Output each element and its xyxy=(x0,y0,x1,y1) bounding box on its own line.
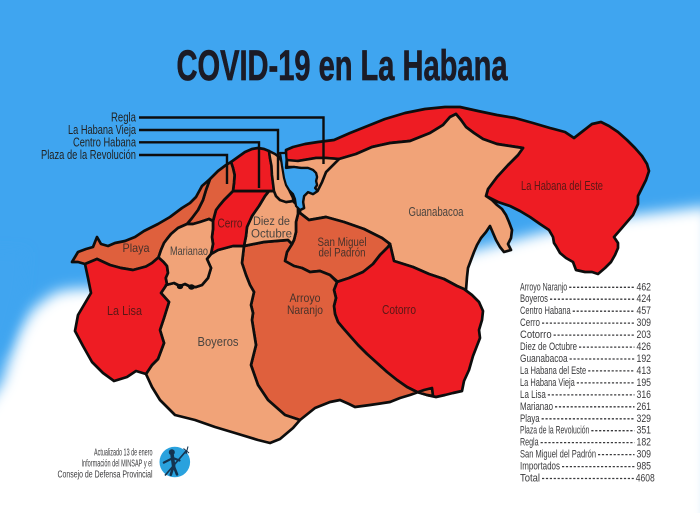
svg-text:Actualizado 13 de enero: Actualizado 13 de enero xyxy=(94,448,153,459)
svg-text:Playa: Playa xyxy=(520,413,540,425)
svg-text:309: 309 xyxy=(637,317,652,329)
svg-text:Cotorro: Cotorro xyxy=(520,329,552,341)
svg-text:Información del MINSAP y el: Información del MINSAP y el xyxy=(82,459,153,470)
svg-text:426: 426 xyxy=(637,341,652,353)
svg-text:Naranjo: Naranjo xyxy=(287,303,323,317)
svg-text:La Lisa: La Lisa xyxy=(107,304,142,318)
svg-text:del Padrón: del Padrón xyxy=(319,248,366,260)
svg-text:Arroyo Naranjo: Arroyo Naranjo xyxy=(520,281,567,293)
svg-text:329: 329 xyxy=(637,413,652,425)
svg-text:413: 413 xyxy=(637,365,652,377)
svg-text:Octubre: Octubre xyxy=(251,229,292,241)
svg-text:Marianao: Marianao xyxy=(520,401,553,413)
svg-text:Boyeros: Boyeros xyxy=(198,335,239,349)
svg-text:Cerro: Cerro xyxy=(520,317,540,329)
svg-text:Diez de Octubre: Diez de Octubre xyxy=(520,341,577,353)
svg-text:316: 316 xyxy=(637,389,652,401)
svg-text:203: 203 xyxy=(637,329,652,341)
svg-text:COVID-19 en La Habana: COVID-19 en La Habana xyxy=(177,42,509,90)
svg-text:351: 351 xyxy=(637,425,652,437)
svg-text:Regla: Regla xyxy=(520,437,539,449)
svg-text:985: 985 xyxy=(637,461,652,473)
svg-text:182: 182 xyxy=(637,437,652,449)
svg-text:Total: Total xyxy=(520,473,540,485)
svg-text:Playa: Playa xyxy=(123,241,150,255)
svg-text:Centro Habana: Centro Habana xyxy=(520,305,571,317)
svg-text:462: 462 xyxy=(637,281,652,293)
svg-text:Plaza de la Revolución: Plaza de la Revolución xyxy=(520,425,589,437)
svg-text:Plaza de la Revolución: Plaza de la Revolución xyxy=(41,148,136,162)
svg-text:La Lisa: La Lisa xyxy=(520,389,546,401)
svg-text:San Miguel del Padrón: San Miguel del Padrón xyxy=(520,449,596,461)
svg-text:Boyeros: Boyeros xyxy=(520,293,548,305)
svg-text:261: 261 xyxy=(637,401,652,413)
svg-text:192: 192 xyxy=(637,353,652,365)
svg-text:309: 309 xyxy=(637,449,652,461)
svg-text:4608: 4608 xyxy=(636,473,655,485)
svg-text:La Habana del Este: La Habana del Este xyxy=(520,365,586,377)
svg-text:Consejo de Defensa Provincial: Consejo de Defensa Provincial xyxy=(58,470,153,481)
svg-text:424: 424 xyxy=(637,293,652,305)
svg-text:La Habana Vieja: La Habana Vieja xyxy=(520,377,575,389)
svg-text:Guanabacoa: Guanabacoa xyxy=(520,353,568,365)
svg-text:Cotorro: Cotorro xyxy=(382,303,416,317)
svg-text:Cerro: Cerro xyxy=(218,217,243,231)
svg-text:195: 195 xyxy=(637,377,652,389)
svg-text:457: 457 xyxy=(637,305,652,317)
svg-text:Diez de: Diez de xyxy=(253,216,290,228)
svg-text:Marianao: Marianao xyxy=(170,244,208,258)
svg-text:Guanabacoa: Guanabacoa xyxy=(409,205,464,219)
svg-text:La Habana del Este: La Habana del Este xyxy=(521,179,603,193)
svg-text:Importados: Importados xyxy=(520,461,560,473)
